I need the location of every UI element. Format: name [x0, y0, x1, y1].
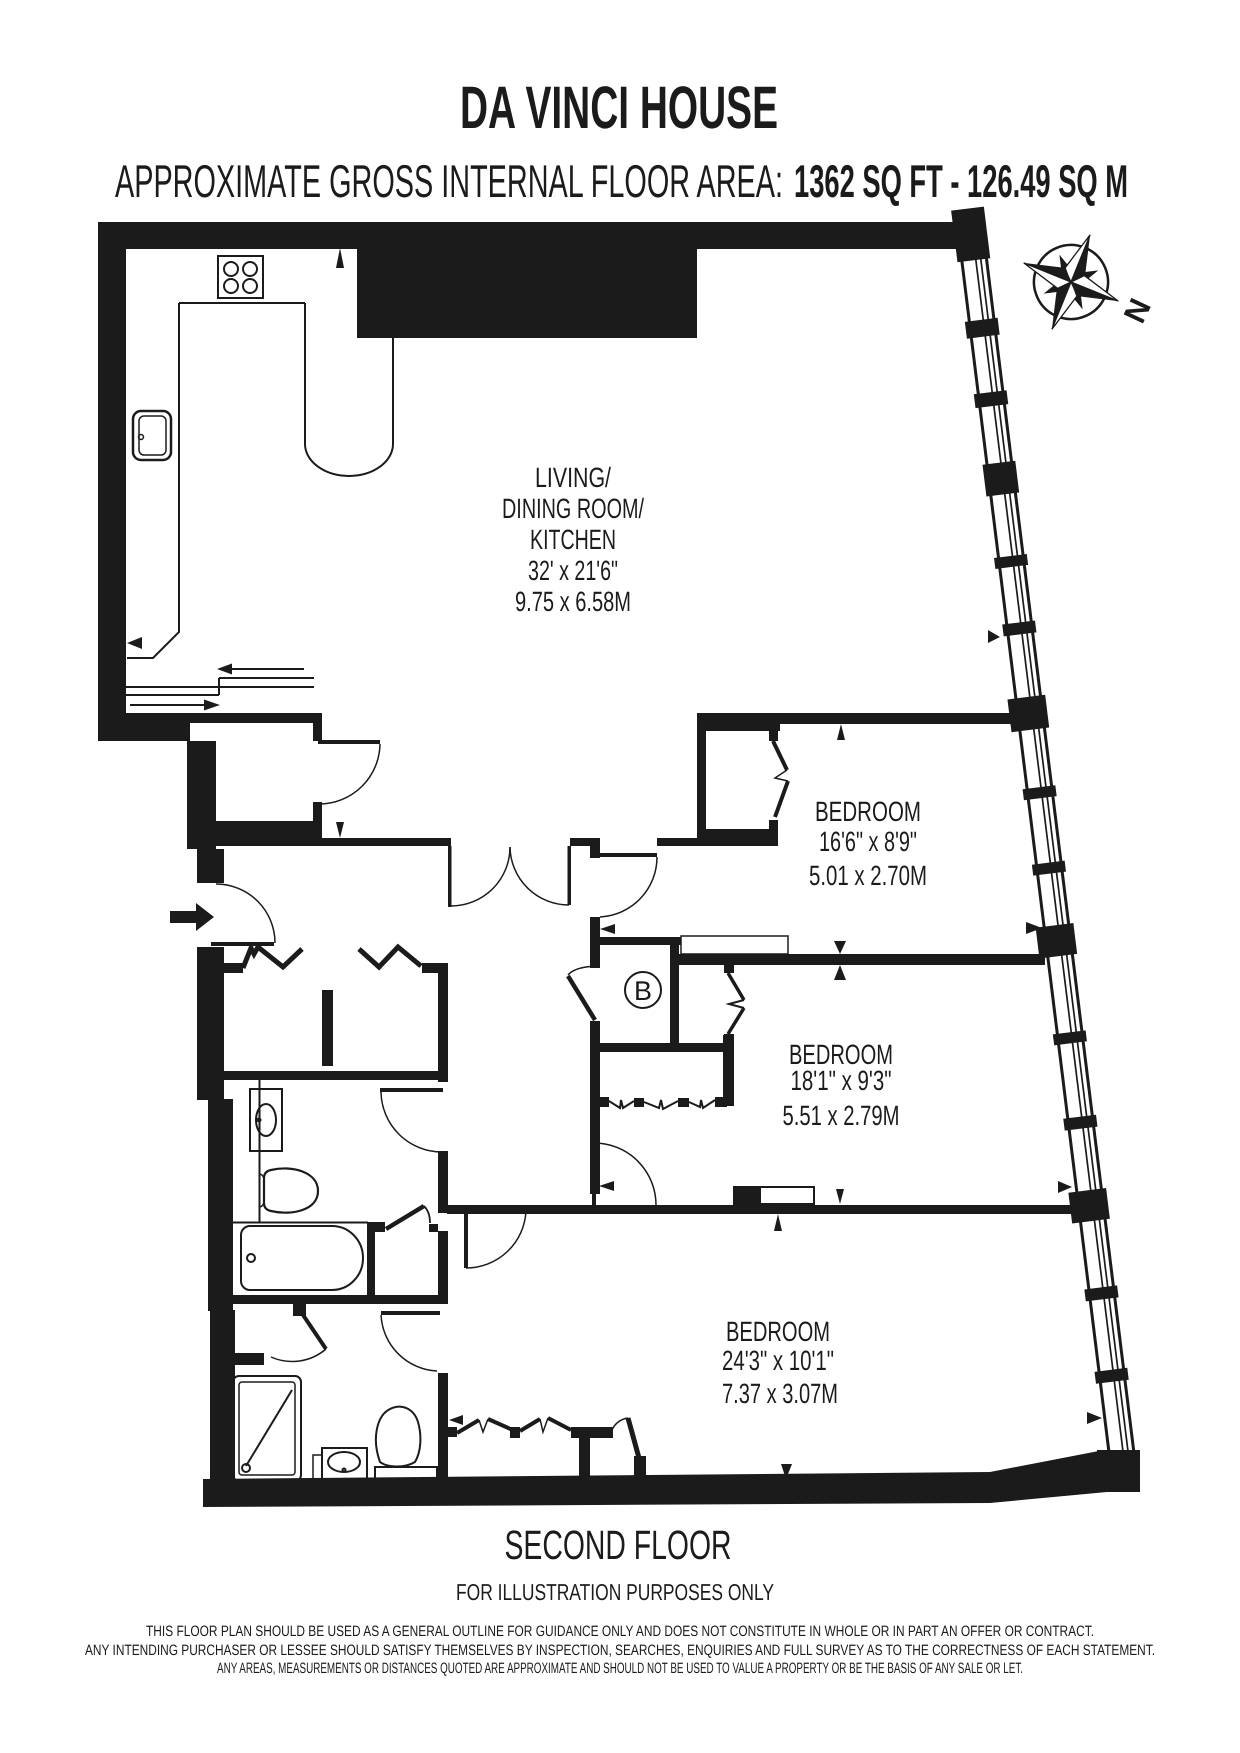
svg-text:1362 SQ FT - 126.49 SQ M: 1362 SQ FT - 126.49 SQ M: [794, 155, 1128, 207]
svg-text:ANY INTENDING PURCHASER OR LES: ANY INTENDING PURCHASER OR LESSEE SHOULD…: [85, 1642, 1155, 1659]
svg-text:32' x 21'6": 32' x 21'6": [528, 555, 618, 586]
svg-text:DINING ROOM/: DINING ROOM/: [502, 493, 644, 524]
svg-text:FOR ILLUSTRATION PURPOSES ONLY: FOR ILLUSTRATION PURPOSES ONLY: [456, 1579, 774, 1605]
svg-text:24'3" x 10'1": 24'3" x 10'1": [722, 1345, 834, 1376]
svg-text:5.01 x 2.70M: 5.01 x 2.70M: [809, 860, 927, 891]
svg-text:THIS FLOOR PLAN SHOULD BE USED: THIS FLOOR PLAN SHOULD BE USED AS A GENE…: [146, 1623, 1094, 1640]
svg-text:7.37 x 3.07M: 7.37 x 3.07M: [722, 1378, 838, 1409]
svg-text:B: B: [634, 976, 652, 1006]
svg-text:LIVING/: LIVING/: [535, 462, 611, 493]
svg-text:16'6" x 8'9": 16'6" x 8'9": [819, 826, 917, 857]
svg-text:BEDROOM: BEDROOM: [815, 796, 921, 827]
svg-text:KITCHEN: KITCHEN: [530, 524, 616, 555]
svg-text:DA VINCI HOUSE: DA VINCI HOUSE: [460, 74, 778, 141]
svg-text:5.51 x 2.79M: 5.51 x 2.79M: [783, 1100, 900, 1131]
svg-text:SECOND FLOOR: SECOND FLOOR: [505, 1522, 732, 1568]
svg-text:9.75 x 6.58M: 9.75 x 6.58M: [515, 586, 631, 617]
svg-text:18'1" x 9'3": 18'1" x 9'3": [791, 1065, 892, 1096]
svg-text:APPROXIMATE GROSS INTERNAL FLO: APPROXIMATE GROSS INTERNAL FLOOR AREA:: [115, 155, 783, 207]
svg-text:BEDROOM: BEDROOM: [726, 1316, 830, 1347]
svg-text:ANY AREAS, MEASUREMENTS OR DIS: ANY AREAS, MEASUREMENTS OR DISTANCES QUO…: [217, 1660, 1023, 1677]
